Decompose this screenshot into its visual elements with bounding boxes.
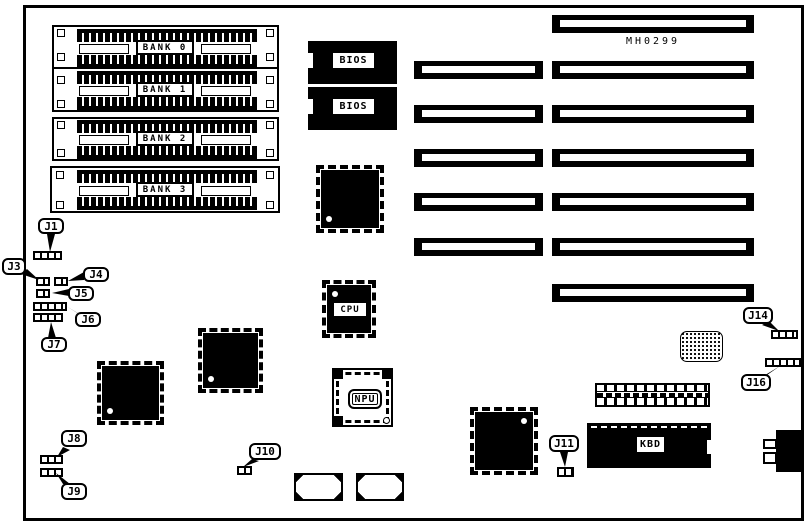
jumper-label-j7: J7 bbox=[41, 337, 67, 352]
jumper-label-j4: J4 bbox=[83, 267, 109, 282]
jumper-label-j14: J14 bbox=[743, 307, 773, 324]
jumper-label-j6: J6 bbox=[75, 312, 101, 327]
jumper-label-j10: J10 bbox=[249, 443, 281, 460]
jumper-label-j11: J11 bbox=[549, 435, 579, 452]
jumper-leader-arrows bbox=[0, 0, 809, 527]
jumper-label-j5: J5 bbox=[68, 286, 94, 301]
jumper-label-j1: J1 bbox=[38, 218, 64, 234]
jumper-label-j8: J8 bbox=[61, 430, 87, 447]
motherboard-diagram: BANK 0 BANK 1 BANK 2 BANK 3 BIOS BIOS MH… bbox=[0, 0, 809, 527]
jumper-label-j16: J16 bbox=[741, 374, 771, 391]
jumper-label-j9: J9 bbox=[61, 483, 87, 500]
jumper-label-j3: J3 bbox=[2, 258, 26, 275]
